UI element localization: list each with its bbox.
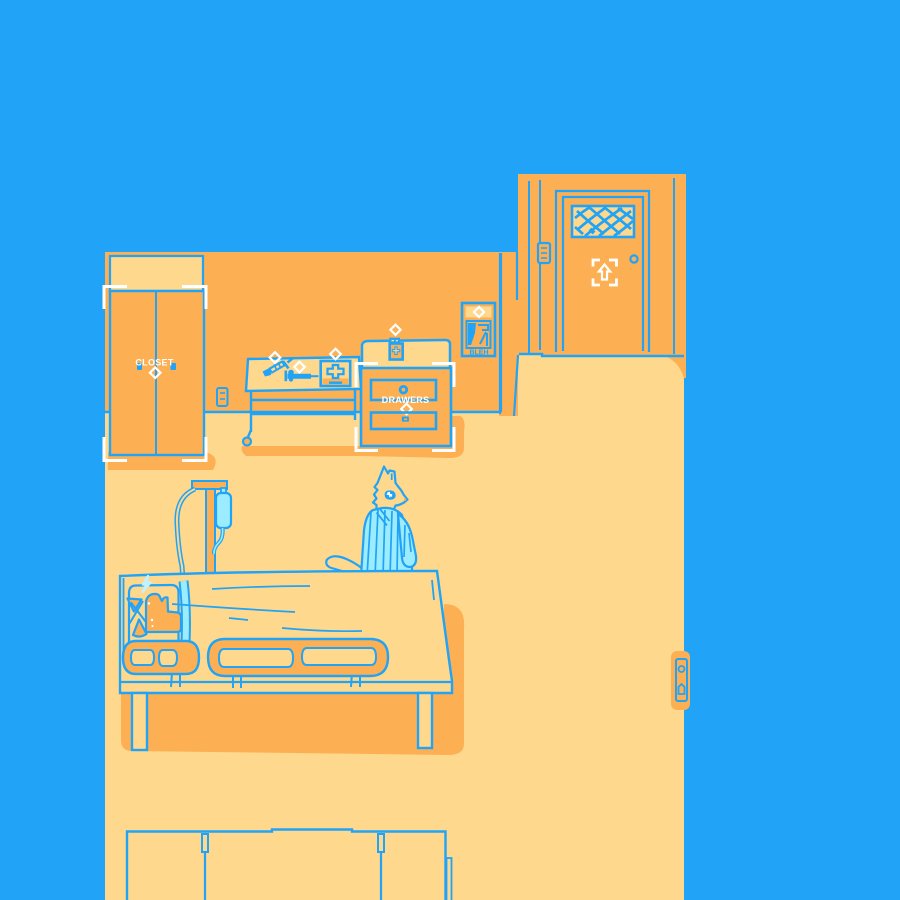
svg-text:CLOSET: CLOSET (135, 358, 174, 368)
svg-text:BLEH: BLEH (469, 350, 488, 357)
